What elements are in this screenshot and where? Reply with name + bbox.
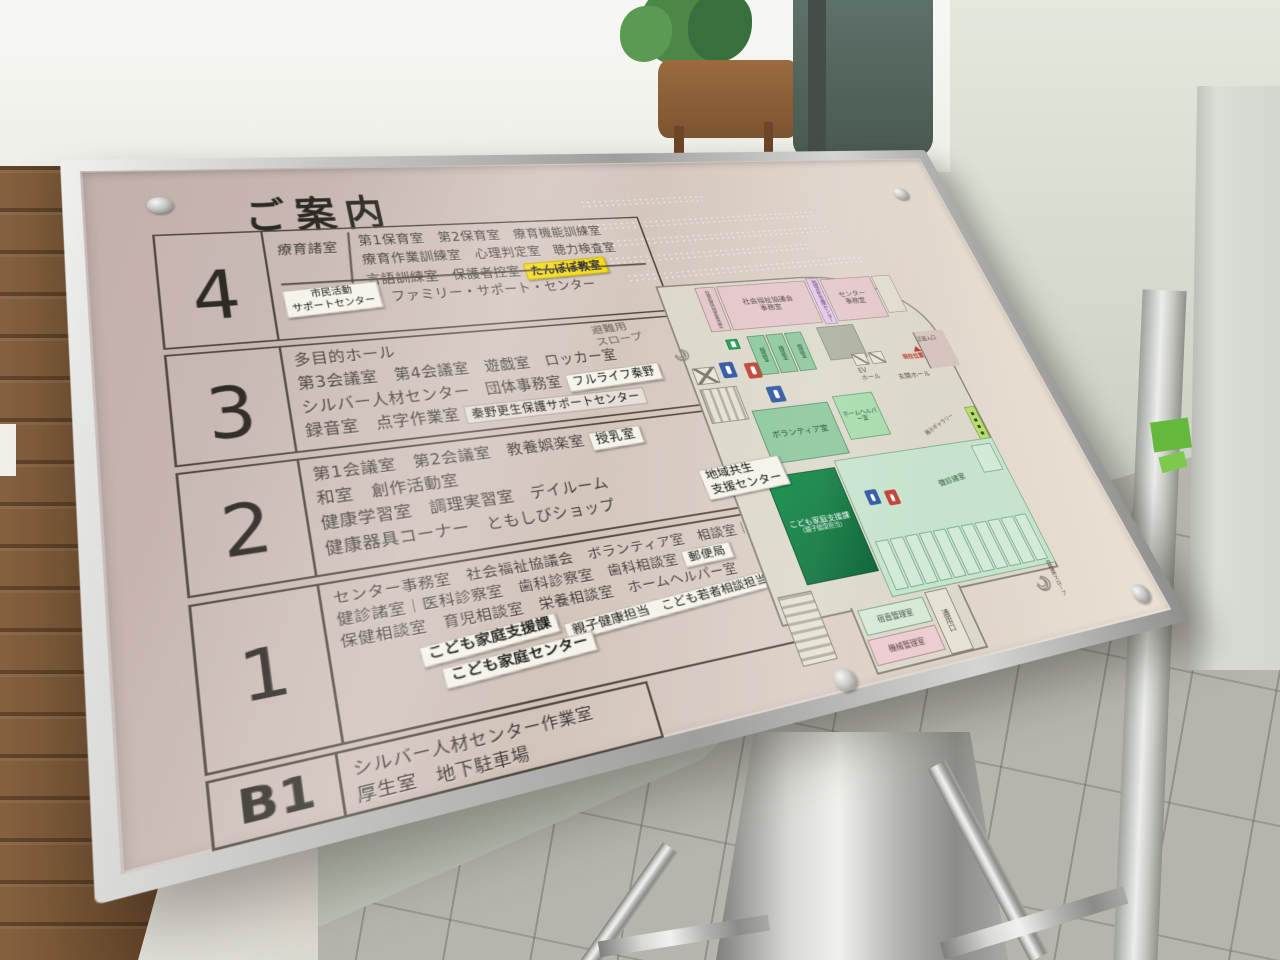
- floor-number-2: 2: [178, 460, 317, 595]
- wall-label: [0, 424, 16, 476]
- bolt: [1128, 583, 1154, 605]
- exam-room-cell: [971, 443, 1004, 473]
- map-room-welfare-office: 社会福祉協議会 事務室: [716, 281, 824, 331]
- bolt: [146, 197, 173, 214]
- room-list-line: ファミリー・サポート・センター: [389, 273, 598, 305]
- green-tape: [1150, 418, 1192, 453]
- window-frame-bar: [808, 0, 826, 156]
- floor-number-3: 3: [166, 348, 297, 466]
- floor-number-4: 4: [155, 232, 280, 348]
- kenshin-label: 健診諸室: [937, 473, 968, 490]
- exam-room-cells: [875, 513, 1048, 590]
- bolt: [890, 188, 911, 201]
- braille-text-block: [579, 195, 704, 209]
- female-toilet-icon: [883, 489, 901, 505]
- partition-board: [1188, 86, 1280, 670]
- lobby-scene: ご案内 4 療育諸室 第1保育室 第2保育室 療育機能訓練室: [0, 0, 1280, 960]
- civic-support-center-sticker: 市民活動 サポートセンター: [281, 281, 383, 318]
- floor-number-1: 1: [191, 586, 344, 773]
- male-toilet-icon: [864, 489, 882, 506]
